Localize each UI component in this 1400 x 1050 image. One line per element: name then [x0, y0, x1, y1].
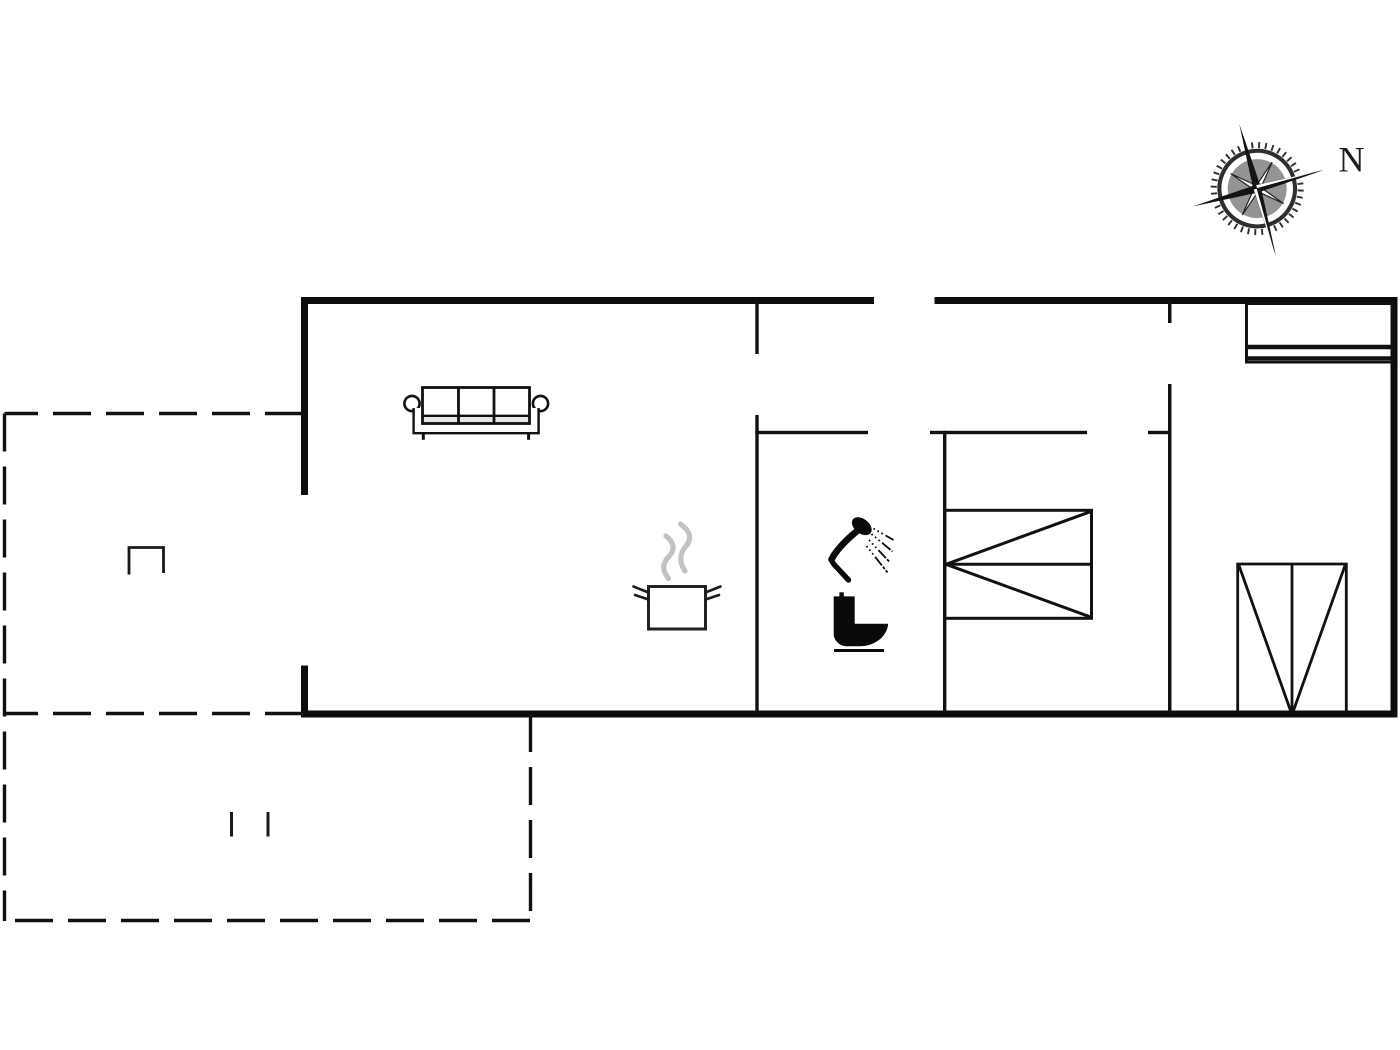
- svg-text:N: N: [1339, 140, 1365, 180]
